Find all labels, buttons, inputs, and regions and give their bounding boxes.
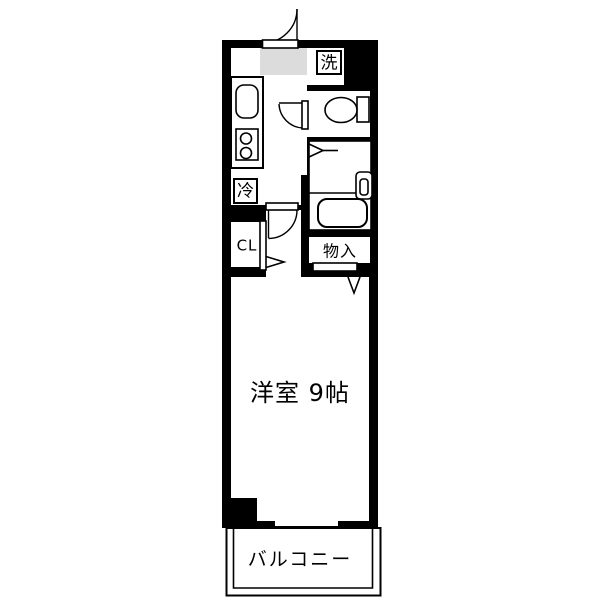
corner-pillar (223, 498, 257, 528)
toilet-door-leaf (302, 101, 308, 129)
room-door-leaf (266, 203, 298, 210)
laundry-label: 洗 (321, 54, 338, 74)
storage-sliding-door (313, 263, 357, 271)
floor-plan-canvas: 洗 冷 CL 物入 洋室 9帖 バルコニー (0, 0, 600, 600)
closet-door (260, 221, 266, 270)
refrigerator-label: 冷 (237, 182, 254, 202)
floor-plan: 洗 冷 CL 物入 洋室 9帖 バルコニー (0, 0, 600, 600)
entrance-door-swing (263, 9, 297, 43)
storage-label: 物入 (323, 242, 357, 261)
stove-burner-bottom (241, 148, 252, 159)
stove-burner-top (241, 133, 252, 144)
toilet-tank (357, 97, 369, 122)
genkan-mat (260, 48, 307, 75)
balcony-window (275, 521, 338, 527)
main-room-label: 洋室 9帖 (250, 379, 350, 407)
toilet-bowl (325, 98, 357, 123)
closet-label: CL (237, 237, 258, 255)
washbasin-inner (360, 179, 368, 195)
kitchen-sink (236, 85, 258, 118)
bathtub (318, 199, 367, 227)
entrance-door-leaf (263, 40, 299, 48)
balcony-label: バルコニー (248, 549, 353, 571)
